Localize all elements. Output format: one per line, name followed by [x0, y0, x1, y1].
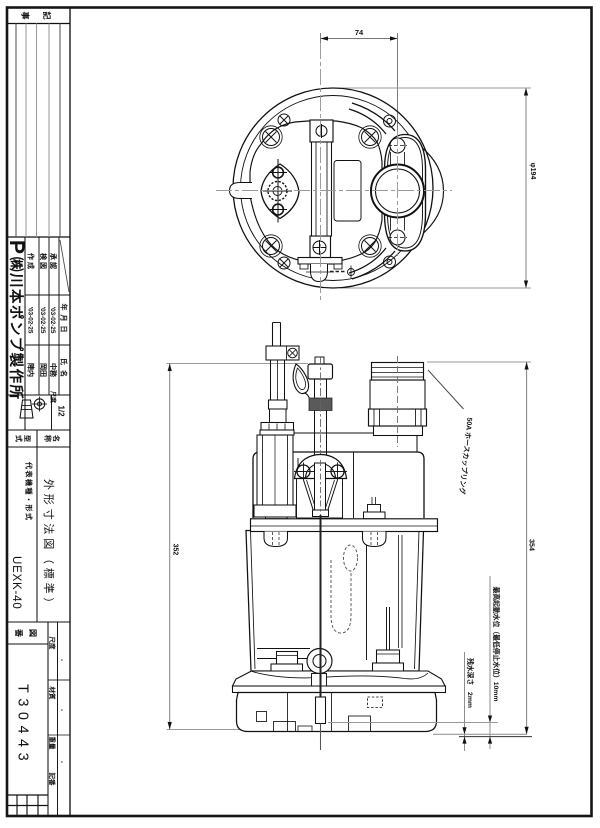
svg-text:氏名: 氏名	[60, 358, 69, 382]
svg-text:尺度: 尺度	[48, 637, 57, 651]
svg-text:材質: 材質	[48, 686, 57, 701]
svg-text:P: P	[5, 240, 28, 254]
svg-text:φ194: φ194	[529, 163, 536, 180]
svg-text:陣内: 陣内	[27, 363, 36, 377]
svg-text:中務: 中務	[49, 363, 58, 378]
svg-text:名: 名	[52, 435, 61, 442]
svg-text:式: 式	[15, 435, 24, 442]
svg-text:作成: 作成	[27, 253, 36, 271]
svg-text:UEXK-40: UEXK-40	[10, 556, 22, 610]
svg-text:型: 型	[23, 435, 32, 442]
svg-text:検図: 検図	[39, 253, 48, 271]
svg-text:記: 記	[42, 12, 52, 20]
svg-text:図: 図	[28, 629, 37, 637]
svg-text:代表機種・形式: 代表機種・形式	[25, 461, 34, 522]
svg-text:354: 354	[528, 539, 535, 551]
svg-text:岡田: 岡田	[39, 363, 47, 377]
svg-text:尺度: 尺度	[49, 391, 57, 404]
svg-text:T30443: T30443	[15, 684, 31, 766]
svg-text:㈱川本ポンプ製作所: ㈱川本ポンプ製作所	[7, 257, 25, 401]
svg-text:残水深さ 2mm: 残水深さ 2mm	[466, 658, 475, 708]
svg-text:1/2: 1/2	[57, 405, 66, 417]
svg-text:'03-02-25: '03-02-25	[27, 307, 34, 334]
svg-text:称: 称	[44, 435, 53, 442]
svg-text:74: 74	[355, 28, 364, 37]
svg-text:記番: 記番	[48, 773, 57, 787]
svg-text:承認: 承認	[49, 253, 58, 271]
svg-text:'03-02-25: '03-02-25	[49, 307, 56, 334]
svg-text:外形寸法図（標準）: 外形寸法図（標準）	[42, 479, 56, 612]
svg-text:重量: 重量	[48, 737, 57, 751]
svg-text:352: 352	[172, 544, 179, 556]
svg-text:年月日: 年月日	[60, 304, 69, 337]
svg-text:最高起動水位（最低停止水位）10mm: 最高起動水位（最低停止水位）10mm	[492, 587, 501, 702]
svg-text:番: 番	[14, 628, 24, 638]
svg-text:'03-02-25: '03-02-25	[39, 307, 46, 334]
svg-text:事: 事	[21, 12, 31, 20]
